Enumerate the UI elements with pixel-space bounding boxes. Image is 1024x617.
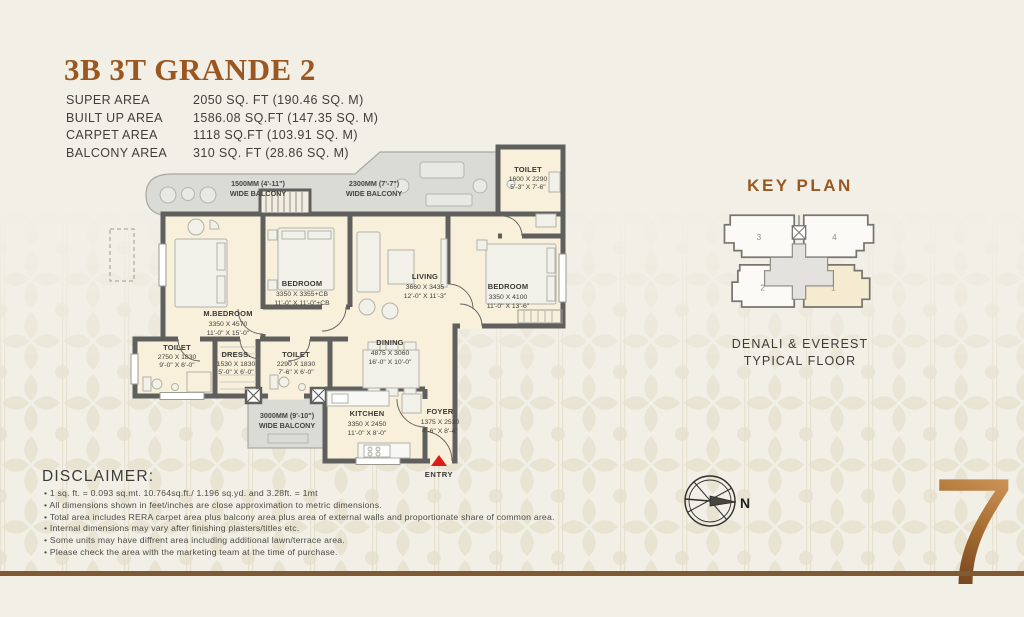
area-row-carpet: CARPET AREA 1118 SQ.FT (103.91 SQ. M) <box>66 127 378 145</box>
room-dim: 5'-0" X 6'-0" <box>218 369 254 376</box>
area-label: BUILT UP AREA <box>66 110 193 128</box>
compass-north-label: N <box>740 495 750 511</box>
bottom-accent-bar <box>0 571 1024 576</box>
disclaimer-item: All dimensions shown in feet/inches are … <box>44 500 555 512</box>
room-dim: 2290 X 1830 <box>277 361 316 368</box>
room-dim: 5'-3" X 7'-6" <box>510 184 546 191</box>
room-dim: 2750 X 1830 <box>158 354 197 361</box>
room-label: TOILET <box>282 350 310 359</box>
area-value: 1586.08 SQ.FT (147.35 SQ. M) <box>193 110 378 128</box>
room-label: M.BEDROOM <box>203 309 252 318</box>
area-row-builtup: BUILT UP AREA 1586.08 SQ.FT (147.35 SQ. … <box>66 110 378 128</box>
keyplan-caption: DENALI & EVEREST TYPICAL FLOOR <box>690 336 910 369</box>
room-label: BEDROOM <box>488 282 529 291</box>
room-label: DINING <box>376 338 403 347</box>
room-dim: 11'-0" X 13'-6" <box>487 303 530 310</box>
disclaimer-list: 1 sq. ft. = 0.093 sq.mt. 10.764sq.ft./ 1… <box>44 488 555 559</box>
compass-icon: N <box>682 470 756 534</box>
room-dim: 12'-0" X 11'-3" <box>404 293 447 300</box>
page-title: 3B 3T GRANDE 2 <box>64 52 316 88</box>
room-dim: 3350 X 2450 <box>348 421 387 428</box>
room-label: LIVING <box>412 272 438 281</box>
balcony-strip <box>146 152 498 216</box>
room-dim: 3350 X 3355+CB <box>276 291 328 298</box>
keyplan-title: KEY PLAN <box>705 176 895 196</box>
area-value: 1118 SQ.FT (103.91 SQ. M) <box>193 127 358 145</box>
floor-number: 7 <box>931 456 1016 608</box>
balcony-label: WIDE BALCONY <box>346 189 403 198</box>
area-label: SUPER AREA <box>66 92 193 110</box>
keyplan-unit-number: 2 <box>760 284 765 293</box>
keyplan-unit-number: 1 <box>831 284 836 293</box>
keyplan-unit-number: 4 <box>832 233 837 242</box>
keyplan-caption-line2: TYPICAL FLOOR <box>690 353 910 370</box>
room-dim: 1530 X 1830 <box>217 361 256 368</box>
room-label: TOILET <box>514 165 542 174</box>
room-dim: 9'-0" X 6'-0" <box>159 362 195 369</box>
balcony-label: WIDE BALCONY <box>259 421 316 430</box>
disclaimer-item: Internal dimensions may vary after finis… <box>44 523 555 535</box>
room-dim: 1600 X 2290 <box>509 176 548 183</box>
sofa-icon <box>357 232 380 292</box>
room-dim: 3350 X 4100 <box>489 294 528 301</box>
balcony-label: WIDE BALCONY <box>230 189 287 198</box>
entry-label: ENTRY <box>425 470 453 479</box>
area-label: CARPET AREA <box>66 127 193 145</box>
room-dim: 3660 X 3435 <box>406 284 445 291</box>
room-dim: 11'-0" X 15'-0" <box>207 330 250 337</box>
keyplan-unit-4 <box>804 215 874 257</box>
room-dim: 7'-6" X 6'-0" <box>278 369 314 376</box>
balcony-label: 2300MM (7'-7") <box>349 179 400 188</box>
disclaimer-item: Please check the area with the marketing… <box>44 547 555 559</box>
disclaimer-item: Total area includes RERA carpet area plu… <box>44 512 555 524</box>
disclaimer-item: 1 sq. ft. = 0.093 sq.mt. 10.764sq.ft./ 1… <box>44 488 555 500</box>
room-dim: 16'-0" X 10'-0" <box>369 359 413 366</box>
dashed-projection <box>110 229 134 281</box>
room-dim: 11'-0" X 8'-0" <box>348 430 387 437</box>
keyplan-diagram: 3 4 2 1 <box>713 200 885 326</box>
room-dim: 4875 X 3060 <box>371 350 410 357</box>
room-label: TOILET <box>163 343 191 352</box>
disclaimer-heading: DISCLAIMER: <box>42 468 154 486</box>
balcony-label: 3000MM (9'-10") <box>260 411 315 420</box>
room-label: KITCHEN <box>350 409 385 418</box>
balcony-label: 1500MM (4'-11") <box>231 179 285 188</box>
area-row-super: SUPER AREA 2050 SQ. FT (190.46 SQ. M) <box>66 92 378 110</box>
room-label: DRESS. <box>221 350 250 359</box>
room-dim: 3350 X 4570 <box>209 321 248 328</box>
floor-plan: M.BEDROOM 3350 X 4570 11'-0" X 15'-0" BE… <box>105 144 572 496</box>
room-label: FOYER <box>427 407 454 416</box>
keyplan-caption-line1: DENALI & EVEREST <box>690 336 910 353</box>
disclaimer-item: Some units may have diffrent area includ… <box>44 535 555 547</box>
room-dim: 11'-0" X 11'-0"+CB <box>274 300 330 307</box>
room-label: BEDROOM <box>282 279 323 288</box>
area-value: 2050 SQ. FT (190.46 SQ. M) <box>193 92 364 110</box>
room-dim: 4'-6" X 8'-4" <box>422 428 458 435</box>
room-dim: 1375 X 2530 <box>421 419 460 426</box>
keyplan-unit-number: 3 <box>757 233 762 242</box>
